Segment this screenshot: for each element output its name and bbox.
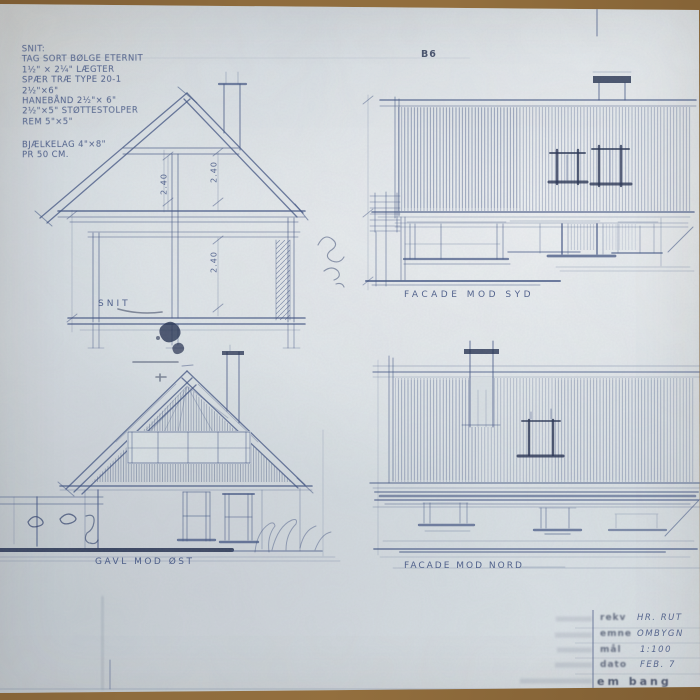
- title-row-label: mål: [600, 645, 622, 655]
- blueprint-paper: SNIT: TAG SORT BØLGE ETERNIT 1½" × 2¼" L…: [0, 0, 700, 700]
- title-row-value: OMBYGN: [637, 629, 684, 639]
- dimension-text: 2.40: [160, 173, 169, 195]
- architect-stamp: em bang: [597, 675, 672, 688]
- title-row-value: HR. RUT: [637, 613, 683, 623]
- title-row-label: rekv: [600, 613, 626, 623]
- spec-line: PR 50 CM.: [22, 150, 106, 161]
- facade-syd-label: FACADE MOD SYD: [404, 290, 534, 300]
- dimension-text: 2.40: [210, 161, 219, 183]
- title-row-value: 1:100: [640, 645, 672, 655]
- gavl-ost-label: GAVL MOD ØST: [95, 557, 195, 567]
- photo-of-blueprint: SNIT: TAG SORT BØLGE ETERNIT 1½" × 2¼" L…: [0, 0, 700, 700]
- title-row-label: emne: [600, 629, 632, 639]
- facade-nord-label: FACADE MOD NORD: [404, 561, 524, 571]
- dimension-text: 2.40: [210, 251, 219, 273]
- spec-line: REM 5"×5": [22, 116, 143, 127]
- spec-line: TAG SORT BØLGE ETERNIT: [22, 54, 143, 65]
- title-row-label: dato: [600, 660, 627, 670]
- spec-line: 2½"×5" STØTTESTOLPER: [22, 106, 143, 117]
- title-row-value: FEB. 7: [640, 660, 676, 670]
- spec-line: BJÆLKELAG 4"×8": [22, 140, 106, 151]
- spec-notes-block: SNIT: TAG SORT BØLGE ETERNIT 1½" × 2¼" L…: [22, 44, 144, 128]
- roof-type-mark: B6: [421, 49, 437, 60]
- spec-footer-block: BJÆLKELAG 4"×8" PR 50 CM.: [22, 140, 106, 161]
- snit-label: SNIT: [98, 299, 131, 309]
